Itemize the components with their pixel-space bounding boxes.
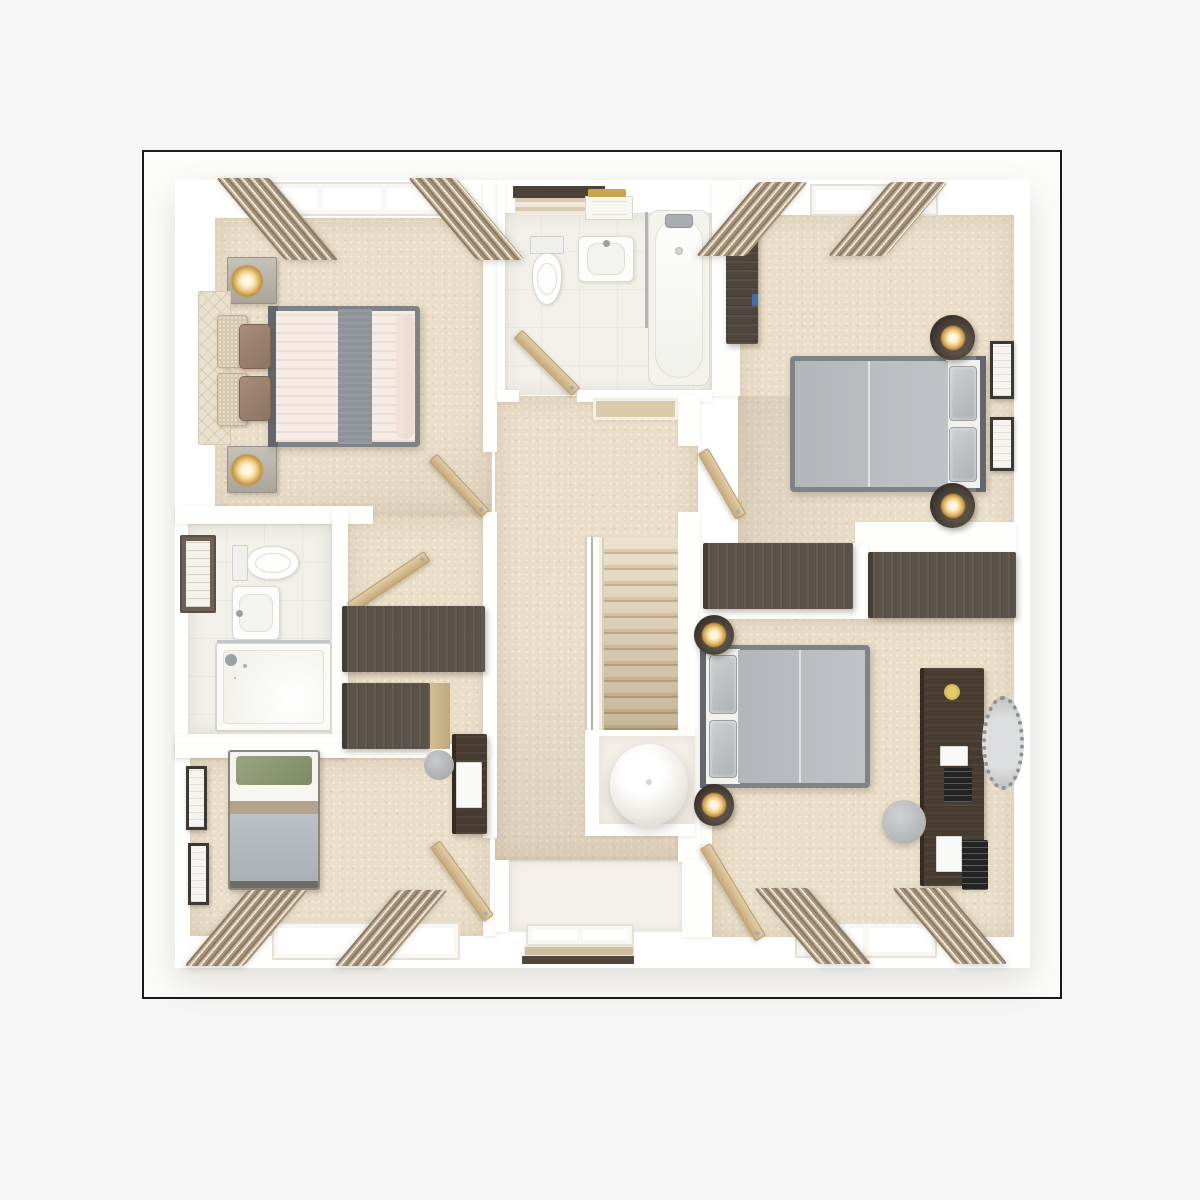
vanity-mirror [982,696,1024,790]
floor-plan-image [0,0,1200,1200]
landing-window-shelf [524,946,634,956]
wardrobe-blue-detail [752,294,758,306]
wall-landing-east-upper [678,396,700,446]
bedroom-3-bed [700,645,870,788]
ensuite-sink [232,586,280,640]
stair-banister [585,537,602,733]
bath-gold-towel [588,189,626,197]
master-nightstand-south [227,446,277,493]
master-nightstand-north [227,257,277,304]
bedroom-2-art-1 [990,341,1014,399]
floor-plan [0,0,1200,1200]
wall-alcove-east [682,860,712,937]
vanity-tablet [944,768,972,802]
wall-bath-south-west [497,390,519,402]
master-pillow-2 [239,376,271,421]
wall-alcove-west [495,860,509,932]
desk-laptop [962,840,988,890]
bath-cabinet [585,196,633,220]
pendant-lamp-sphere [610,744,688,826]
dressing-wardrobe-2 [342,683,430,749]
landing-window-base [522,956,634,964]
vanity-paper [940,746,968,766]
stair-bulkhead [593,398,678,420]
bath-toilet [527,236,567,306]
wall-bath-west [497,180,505,396]
wall-wardrobe-gap [853,543,868,619]
staircase [602,538,678,730]
bedroom-4-art-2 [188,843,209,905]
built-in-wardrobe-1 [703,543,853,609]
master-bed [268,306,420,447]
dressing-side-panel [430,683,450,749]
ensuite-toilet [232,542,300,584]
bedroom-3-table-south [694,784,734,826]
vanity-flower [944,684,960,700]
bathtub [648,210,710,386]
desk-paper [936,836,962,872]
wall-bed2-bed3-east [855,522,1016,554]
bedroom-4-bed [228,750,320,890]
bedroom-2-table-south [930,483,975,528]
bedroom-3-table-north [694,615,734,655]
bedroom-2-bed [790,356,986,492]
master-pillow-1 [239,324,271,369]
ensuite-shower [215,642,332,732]
bedroom-4-desk-laptop [456,762,482,808]
landing-window [526,924,634,946]
bedroom-2-art-2 [990,417,1014,471]
bedroom-2-table-north [930,315,975,360]
bedroom-4-art-1 [186,766,207,830]
bedroom-4-stool [424,750,454,780]
bath-sink [578,236,634,282]
dressing-wardrobe-1 [342,606,485,672]
window-alcove-floor [508,860,696,932]
ensuite-mirror-cabinet [180,535,216,613]
bedroom-3-pouf [882,800,926,844]
built-in-wardrobe-2 [868,552,1016,618]
